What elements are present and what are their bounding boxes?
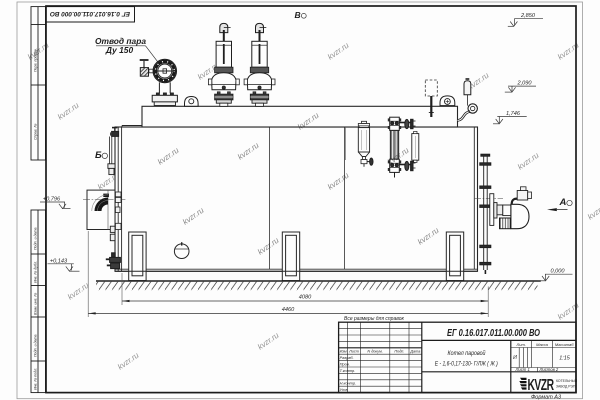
- svg-text:Б: Б: [95, 150, 102, 161]
- svg-text:Инв. № дубл.: Инв. № дубл.: [33, 261, 37, 283]
- svg-text:В: В: [295, 10, 301, 20]
- svg-text:Формат А3: Формат А3: [531, 395, 562, 400]
- svg-text:4460: 4460: [282, 307, 295, 313]
- svg-text:Дата: Дата: [409, 349, 420, 353]
- svg-text:Подп. и дата: Подп. и дата: [33, 228, 37, 251]
- svg-text:ЕГ 0.16.017.011.00.000 ВО: ЕГ 0.16.017.011.00.000 ВО: [447, 327, 540, 339]
- svg-text:ЗАВОД РЭП: ЗАВОД РЭП: [556, 385, 576, 389]
- svg-text:Лист 1: Лист 1: [515, 367, 530, 372]
- svg-text:Т.контр.: Т.контр.: [340, 368, 356, 373]
- svg-text:Утв.: Утв.: [340, 387, 349, 392]
- svg-text:0,000: 0,000: [551, 269, 566, 275]
- svg-text:KVZR: KVZR: [528, 377, 555, 394]
- svg-text:Инв. № подл.: Инв. № подл.: [33, 368, 37, 390]
- svg-text:Масса: Масса: [536, 342, 549, 347]
- svg-text:Изм: Изм: [340, 349, 347, 353]
- svg-text:Лит.: Лит.: [516, 342, 526, 347]
- svg-text:Подп.: Подп.: [394, 349, 404, 353]
- svg-text:Масштаб: Масштаб: [555, 342, 574, 347]
- svg-text:2,090: 2,090: [517, 81, 533, 87]
- svg-text:Ду 150: Ду 150: [105, 45, 134, 55]
- svg-text:Разраб.: Разраб.: [340, 355, 354, 360]
- svg-text:И: И: [513, 355, 517, 361]
- svg-text:КОТЕЛЬНЫЙ: КОТЕЛЬНЫЙ: [556, 379, 578, 383]
- svg-text:Подп. и дата: Подп. и дата: [33, 335, 37, 358]
- svg-text:Все размеры для справок: Все размеры для справок: [344, 316, 405, 322]
- svg-text:Котел паровой: Котел паровой: [448, 350, 486, 357]
- svg-text:1:15: 1:15: [559, 356, 570, 362]
- svg-text:Листов 2: Листов 2: [539, 367, 559, 372]
- svg-text:4080: 4080: [299, 295, 312, 301]
- svg-text:+0,143: +0,143: [50, 258, 68, 264]
- svg-text:Пров.: Пров.: [340, 361, 350, 366]
- svg-text:Перв. примен.: Перв. примен.: [33, 48, 37, 72]
- svg-text:Н.контр.: Н.контр.: [340, 381, 356, 386]
- svg-text:Взам. инв. №: Взам. инв. №: [33, 293, 37, 315]
- svg-text:2,850: 2,850: [520, 13, 536, 19]
- svg-text:ЕГ 0.16.017.011.00.000 ВО: ЕГ 0.16.017.011.00.000 ВО: [49, 10, 130, 17]
- svg-text:Лист: Лист: [348, 349, 359, 353]
- svg-text:А: А: [559, 197, 567, 208]
- svg-text:+0,796: +0,796: [43, 197, 61, 203]
- svg-text:1,746: 1,746: [506, 111, 521, 117]
- svg-text:Е - 1,6-0,17-130- Г/ЛЖ ( Ж ): Е - 1,6-0,17-130- Г/ЛЖ ( Ж ): [435, 361, 498, 368]
- svg-text:N докум.: N докум.: [367, 349, 382, 353]
- svg-text:Справ. №: Справ. №: [33, 124, 37, 140]
